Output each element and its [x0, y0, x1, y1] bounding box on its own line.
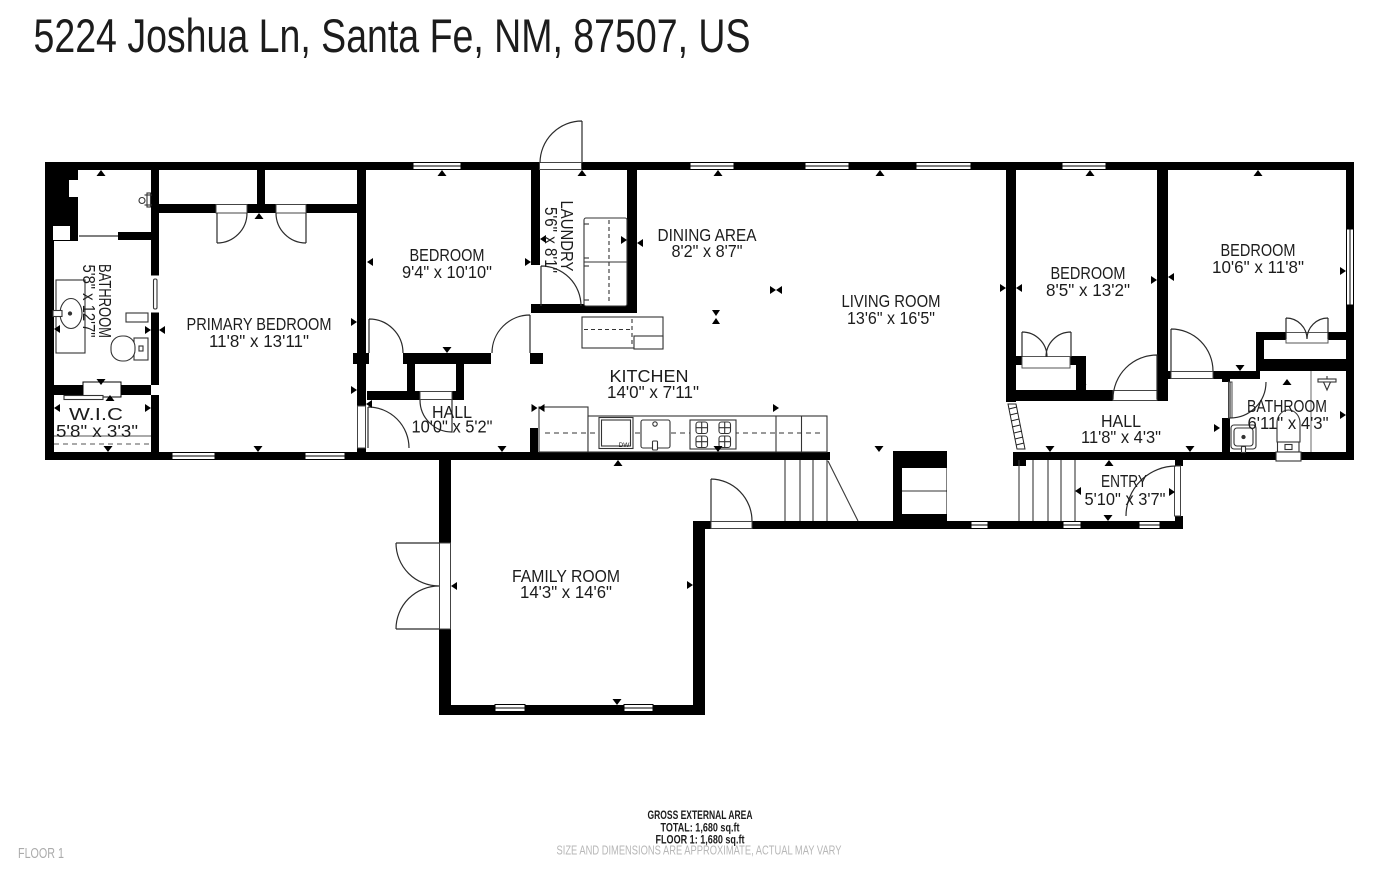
svg-text:11'8" x 13'11": 11'8" x 13'11": [209, 331, 309, 351]
svg-text:6'11" x 4'3": 6'11" x 4'3": [1248, 413, 1329, 433]
svg-text:DW: DW: [619, 442, 631, 449]
svg-text:9'4" x 10'10": 9'4" x 10'10": [402, 262, 492, 282]
svg-text:5'8" x 3'3": 5'8" x 3'3": [56, 421, 138, 441]
svg-text:11'8" x 4'3": 11'8" x 4'3": [1081, 427, 1161, 447]
svg-text:ENTRY: ENTRY: [1101, 471, 1147, 491]
svg-text:10'6" x 11'8": 10'6" x 11'8": [1212, 257, 1304, 277]
svg-text:10'0" x 5'2": 10'0" x 5'2": [412, 417, 493, 437]
svg-text:5'8" x 12'7": 5'8" x 12'7": [79, 265, 99, 338]
svg-text:5'6" x 8'1": 5'6" x 8'1": [541, 207, 561, 273]
svg-text:8'2" x 8'7": 8'2" x 8'7": [672, 241, 743, 261]
svg-text:5'10" x 3'7": 5'10" x 3'7": [1085, 489, 1166, 509]
svg-text:14'3" x 14'6": 14'3" x 14'6": [520, 582, 612, 602]
svg-text:5224 Joshua Ln, Santa Fe, NM,: 5224 Joshua Ln, Santa Fe, NM, 87507, US: [34, 9, 751, 62]
svg-text:FLOOR 1: FLOOR 1: [18, 845, 64, 862]
svg-text:SIZE AND DIMENSIONS ARE APPROX: SIZE AND DIMENSIONS ARE APPROXIMATE, ACT…: [557, 843, 842, 858]
svg-text:13'6" x 16'5": 13'6" x 16'5": [847, 308, 935, 328]
svg-text:8'5" x 13'2": 8'5" x 13'2": [1046, 280, 1130, 300]
svg-text:14'0" x 7'11": 14'0" x 7'11": [607, 382, 699, 402]
